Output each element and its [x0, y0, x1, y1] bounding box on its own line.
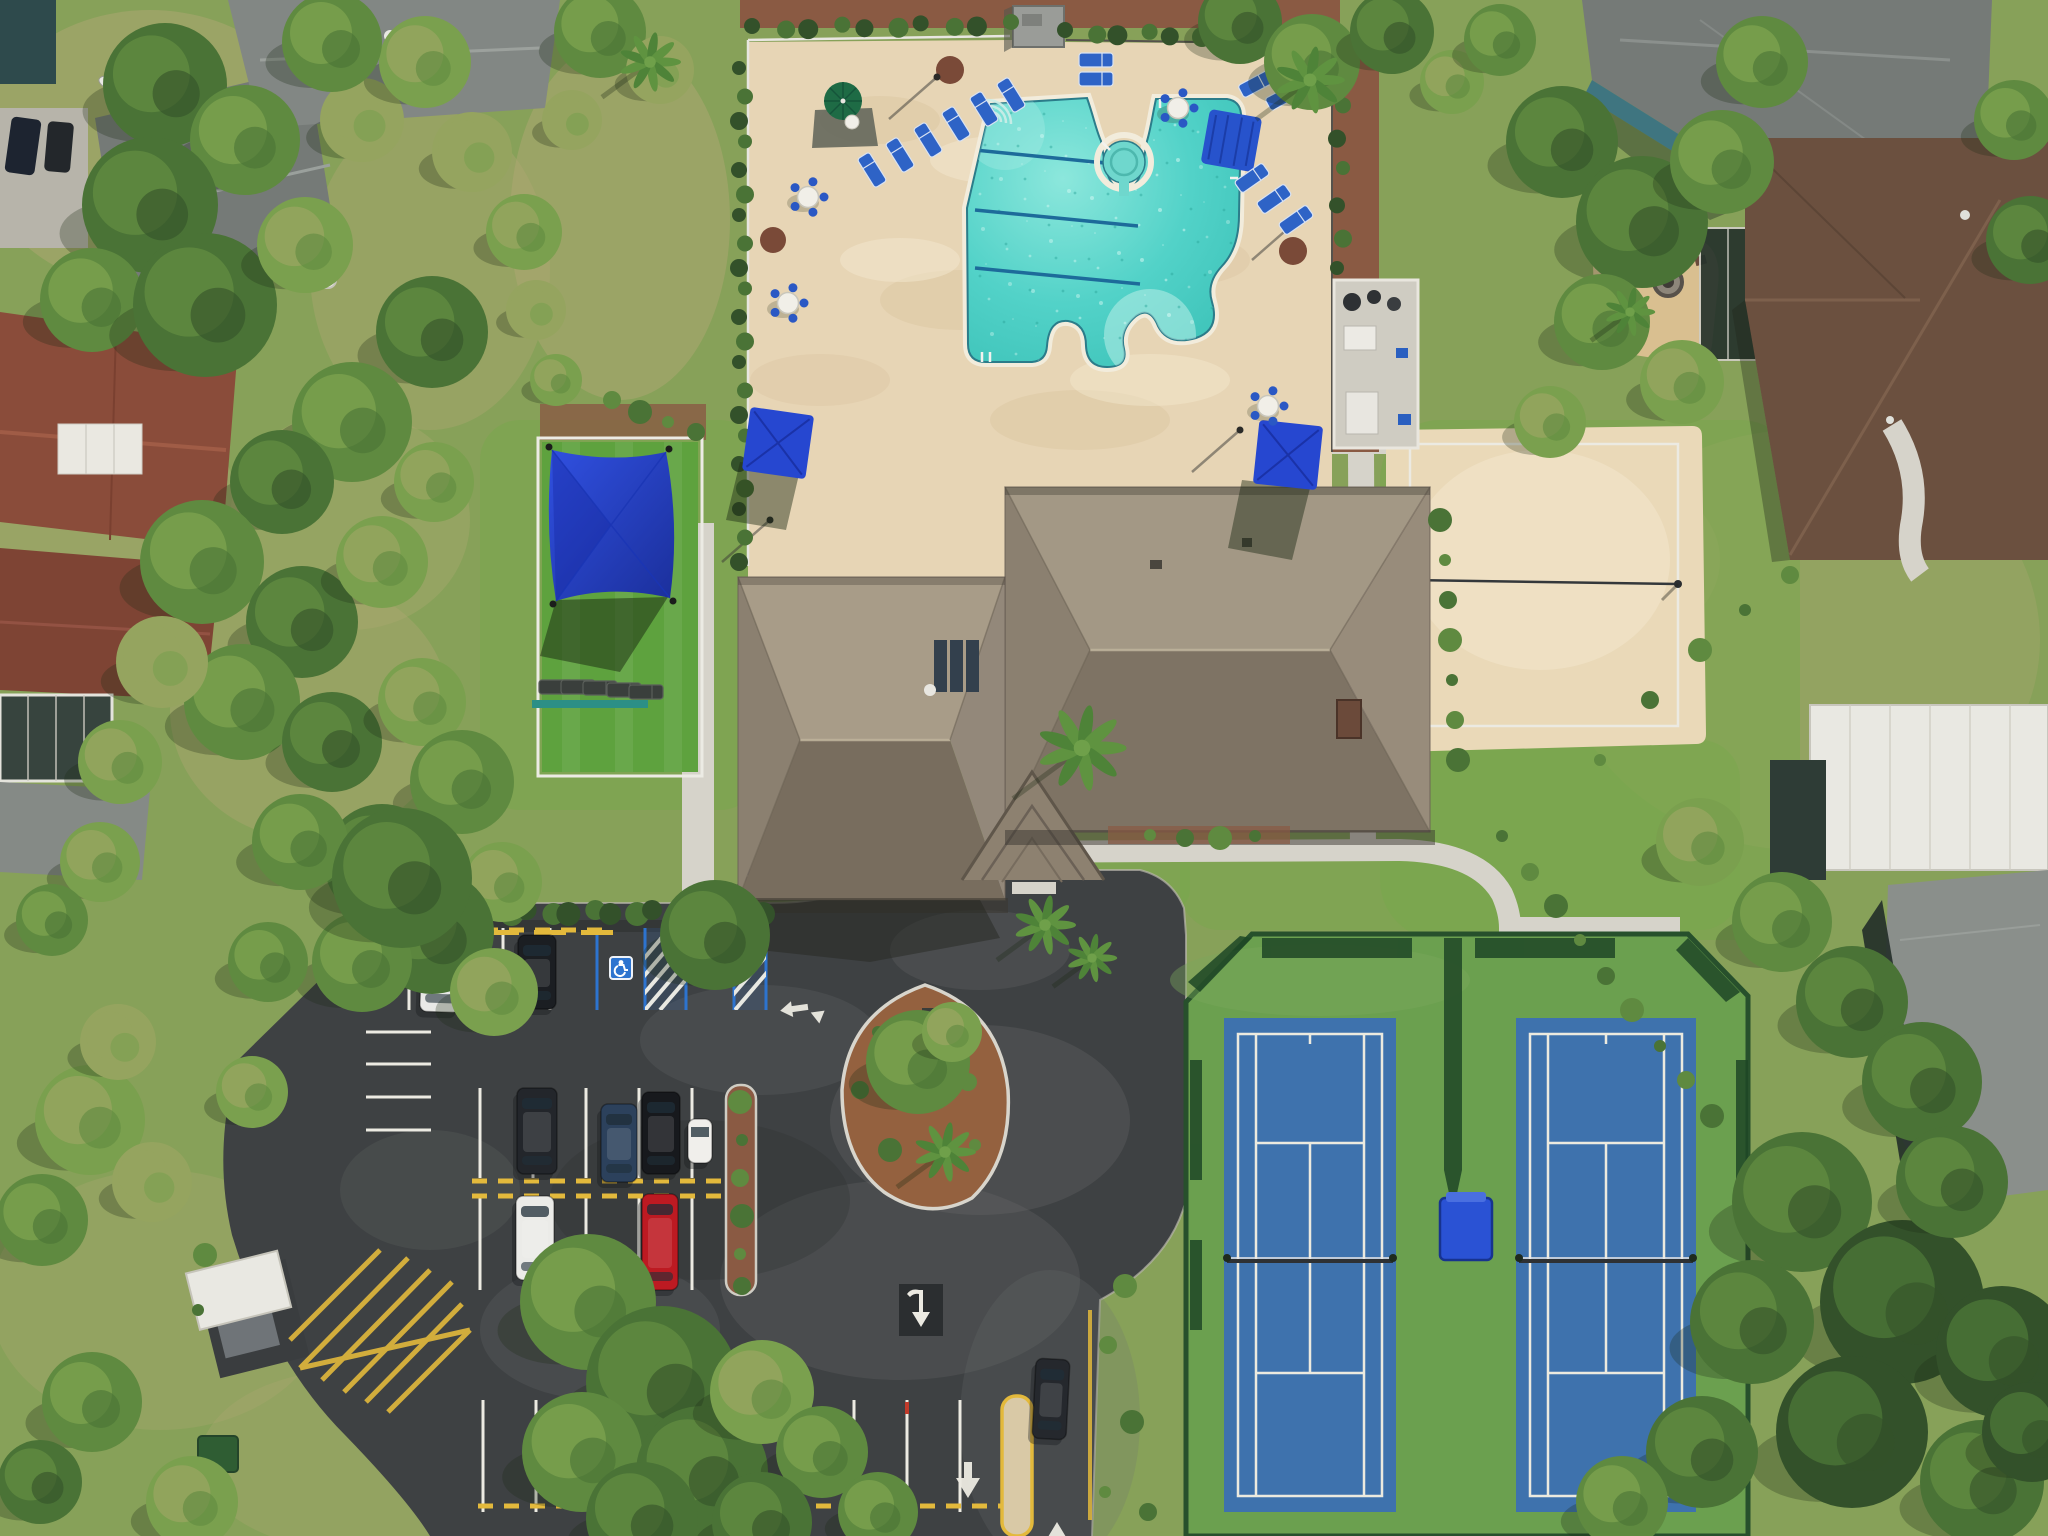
roof-vent [924, 684, 936, 696]
shrub [193, 1243, 217, 1267]
parking-median-mulch [726, 1085, 756, 1295]
hedge-bush [737, 530, 753, 546]
dark-screen [1770, 760, 1826, 880]
deck-planter-1 [936, 56, 964, 84]
shrub [1641, 691, 1659, 709]
hedge-bush [736, 333, 754, 351]
hedge-bush [1161, 27, 1179, 45]
yellow-dash [472, 1179, 487, 1184]
hedge-bush [737, 89, 753, 105]
shrub [1099, 1486, 1111, 1498]
hedge-bush [730, 112, 748, 130]
shrub [1439, 554, 1451, 566]
hedge-bush [855, 19, 873, 37]
hedge-bush [730, 553, 748, 571]
hedge-bush [889, 18, 909, 38]
shrub [730, 1204, 754, 1228]
hedge-bush [1088, 26, 1106, 44]
shrub [736, 1134, 748, 1146]
shrub [1521, 863, 1539, 881]
hedge-bush [913, 15, 929, 31]
clubhouse-west-wing [738, 577, 1005, 900]
hedge-bush [777, 21, 795, 39]
yellow-dash [509, 928, 524, 933]
lounge-chair [1079, 72, 1113, 86]
hydrant-marker [905, 1402, 909, 1414]
shrub [192, 1304, 204, 1316]
white-lanai-roof [1810, 705, 2048, 870]
yellow-dash [706, 1194, 721, 1199]
shrub [733, 1277, 751, 1295]
shrub [1594, 754, 1606, 766]
house-dark-brown-roof [1745, 138, 2048, 560]
shrub [728, 1090, 752, 1114]
hedge-bush [642, 900, 662, 920]
light-pole [934, 74, 941, 81]
yellow-dash [972, 1504, 987, 1509]
yellow-dash [706, 1179, 721, 1184]
tree [0, 1440, 82, 1524]
teal-bench-bar [532, 700, 648, 708]
hedge-bush [731, 162, 747, 178]
white-lanai [58, 424, 142, 474]
clubhouse-east-wing [1005, 487, 1430, 832]
yellow-dash [628, 1194, 643, 1199]
vehicle-blue-sedan [597, 1104, 637, 1188]
vehicle-black-suv [513, 1088, 557, 1180]
deck-planter-2 [760, 227, 786, 253]
playground [532, 404, 706, 776]
shrub [878, 1138, 902, 1162]
light-pole [1237, 427, 1244, 434]
shrub [1446, 674, 1458, 686]
hedge-bush [736, 186, 754, 204]
solar-panel [934, 640, 947, 692]
shrub [1677, 1071, 1695, 1089]
shrub [1620, 998, 1644, 1022]
entry-median [1002, 1396, 1032, 1536]
hedge-bush [1003, 14, 1019, 30]
hedge-bush [732, 208, 746, 222]
equipment-yard [1334, 280, 1418, 448]
shrub [1544, 894, 1568, 918]
yellow-dash [680, 1194, 695, 1199]
shrub [1139, 1503, 1157, 1521]
hedge-bush [1330, 261, 1344, 275]
shrub [662, 416, 674, 428]
hedge-bush [1142, 24, 1158, 40]
hedge-bush [737, 236, 753, 252]
shrub [1654, 1040, 1666, 1052]
lounge-chair [1079, 53, 1113, 67]
shrub [1439, 591, 1457, 609]
vehicle-black-suv-2 [638, 1092, 680, 1180]
hedge-bush [967, 16, 987, 36]
shrub [687, 423, 705, 441]
hedge-bush [744, 18, 760, 34]
hedge-bush [1329, 197, 1345, 213]
chimney [1337, 700, 1361, 738]
vehicle-exiting-car [1028, 1358, 1070, 1446]
vehicle-golf-cart [684, 1119, 712, 1169]
shrub [1496, 830, 1508, 842]
shrub [1120, 1410, 1144, 1434]
hedge-bush [732, 355, 746, 369]
hedge-bush [1334, 230, 1352, 248]
hedge-bush [730, 259, 748, 277]
yellow-dash [680, 1179, 695, 1184]
shrub [1574, 934, 1586, 946]
swimming-pool [965, 90, 1241, 381]
shrub [1249, 830, 1261, 842]
hedge-bush [731, 309, 747, 325]
divider-curtain [1444, 938, 1462, 1212]
shrub [731, 1169, 749, 1187]
yellow-dash [576, 1194, 591, 1199]
blue-cabana [1201, 109, 1263, 172]
hedge-bush [599, 903, 621, 925]
shrub [1176, 829, 1194, 847]
tennis-court-1 [1223, 1018, 1397, 1512]
yellow-dash [478, 1504, 493, 1509]
yellow-dash [504, 1504, 519, 1509]
handicap-icon-1 [610, 957, 632, 979]
yellow-dash [561, 928, 576, 933]
hedge-bush [1057, 22, 1073, 38]
hedge-bush [946, 18, 964, 36]
solar-panel [950, 640, 963, 692]
ball-machine-box [1440, 1198, 1492, 1260]
yellow-dash [472, 1194, 487, 1199]
yellow-dash [602, 1194, 617, 1199]
shrub [1446, 748, 1470, 772]
shrub [1144, 829, 1156, 841]
yellow-dash [576, 1179, 591, 1184]
hedge-bush [737, 383, 753, 399]
yellow-dash [498, 1179, 513, 1184]
solar-panel [966, 640, 979, 692]
shrub [1781, 566, 1799, 584]
shrub [1208, 826, 1232, 850]
hedge-bush [730, 406, 748, 424]
shrub [1446, 711, 1464, 729]
hedge-bush [1107, 25, 1127, 45]
deck-planter-3 [1279, 237, 1307, 265]
yellow-dash [550, 1179, 565, 1184]
hedge-bush [1328, 130, 1346, 148]
shrub [1438, 628, 1462, 652]
shrub [1597, 967, 1615, 985]
parked-car-dark [44, 121, 74, 173]
shrub [628, 400, 652, 424]
tree [0, 1174, 88, 1266]
shrub [1688, 638, 1712, 662]
yellow-dash [498, 1194, 513, 1199]
hedge-bush [556, 902, 580, 926]
screened-pool-corner [0, 0, 56, 84]
yellow-dash [535, 928, 550, 933]
yellow-dash [587, 928, 602, 933]
hedge-bush [1336, 161, 1350, 175]
lounge-chair [629, 685, 663, 699]
hedge-bush [834, 17, 850, 33]
yellow-dash [946, 1504, 961, 1509]
shrub [603, 391, 621, 409]
yellow-dash [920, 1504, 935, 1509]
hedge-bush [798, 19, 818, 39]
shrub [1739, 604, 1751, 616]
hedge-bush [732, 61, 746, 75]
turn-arrow [899, 1284, 943, 1336]
shrub [1428, 508, 1452, 532]
shrub [1099, 1336, 1117, 1354]
roof-vent-2 [1150, 560, 1162, 569]
yellow-dash [816, 1504, 831, 1509]
aerial-photo-community-amenity-center [0, 0, 2048, 1536]
hedge-bush [738, 282, 752, 296]
hedge-bush [738, 135, 752, 149]
shrub [1700, 1104, 1724, 1128]
shrub [1113, 1274, 1137, 1298]
shrub [734, 1248, 746, 1260]
